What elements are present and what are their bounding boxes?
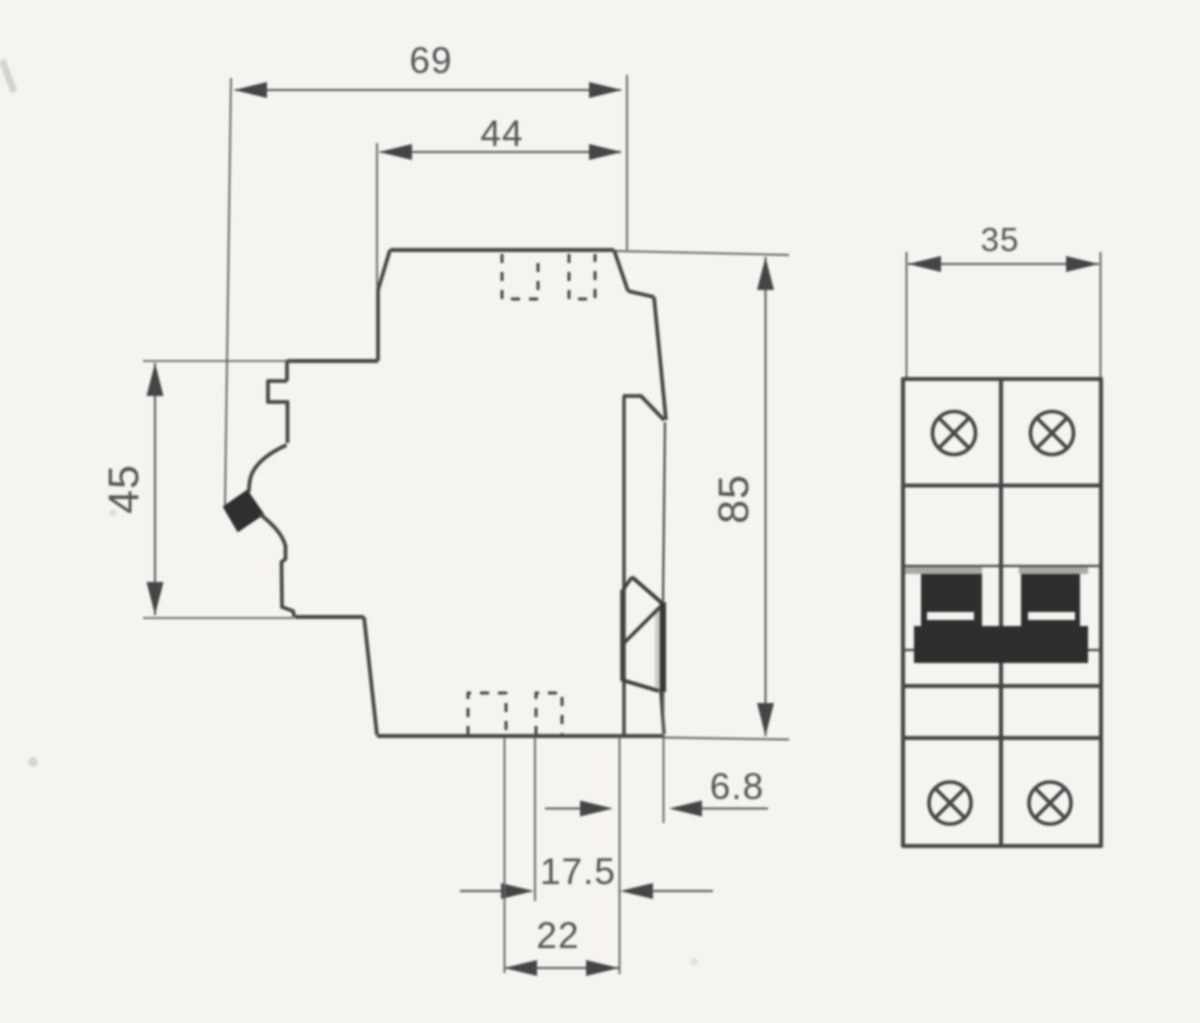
svg-text:22: 22 xyxy=(536,915,579,956)
svg-text:17.5: 17.5 xyxy=(540,851,616,892)
svg-text:44: 44 xyxy=(480,113,523,154)
svg-text:35: 35 xyxy=(981,221,1020,258)
svg-text:6.8: 6.8 xyxy=(710,766,764,807)
svg-text:69: 69 xyxy=(409,40,452,81)
svg-text:85: 85 xyxy=(710,474,758,524)
svg-text:45: 45 xyxy=(100,464,148,514)
